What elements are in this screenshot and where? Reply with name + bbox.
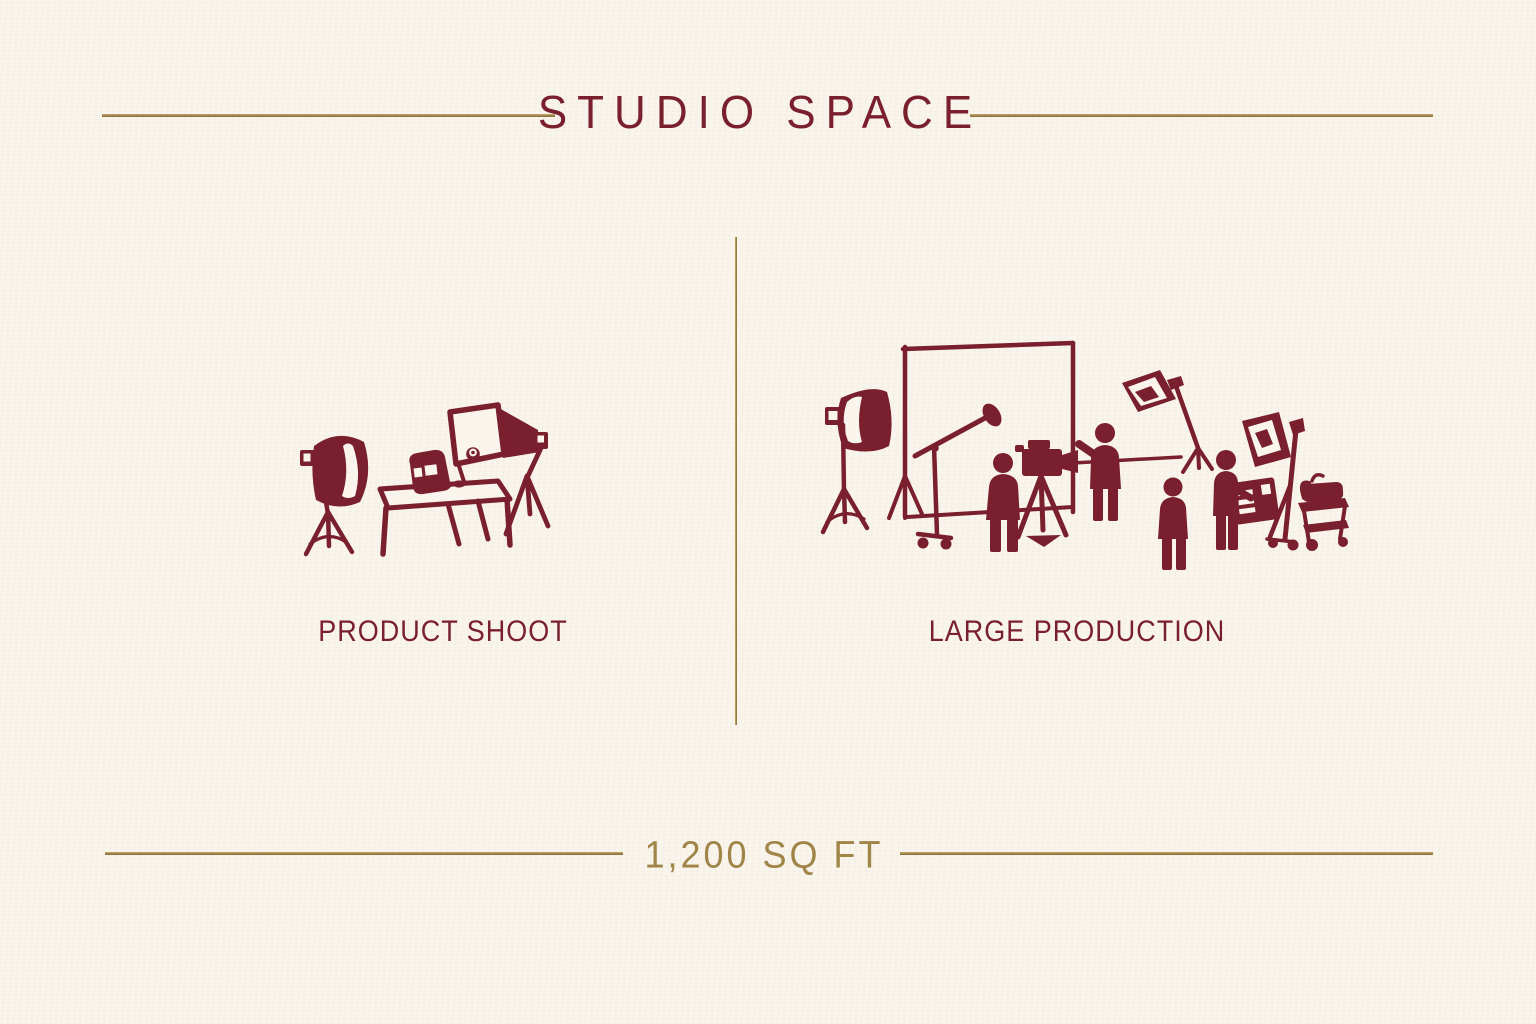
studio-space-infographic: STUDIO SPACE: [0, 0, 1536, 1024]
video-camera-icon: [1015, 440, 1078, 547]
studio-panel-light-icon: [450, 405, 548, 534]
table-icon: [380, 481, 510, 554]
crew-person-icon: [1158, 478, 1188, 571]
area-size-label: 1,200 SQ FT: [0, 833, 1528, 877]
page-title: STUDIO SPACE: [0, 87, 1520, 140]
softbox-light-icon: [300, 436, 368, 554]
large-production-label: LARGE PRODUCTION: [800, 614, 1354, 648]
title-rule-right: [970, 114, 1433, 117]
crew-person-icon: [1079, 423, 1121, 521]
section-divider-line: [735, 237, 737, 725]
equipment-cart-icon: [1298, 475, 1349, 551]
large-production-illustration: [815, 336, 1367, 588]
crew-person-icon: [986, 453, 1020, 552]
softbox-light-icon: [823, 389, 892, 532]
product-shoot-label: PRODUCT SHOOT: [277, 614, 609, 648]
footer-rule-right: [900, 852, 1433, 855]
product-shoot-illustration: [298, 402, 568, 562]
